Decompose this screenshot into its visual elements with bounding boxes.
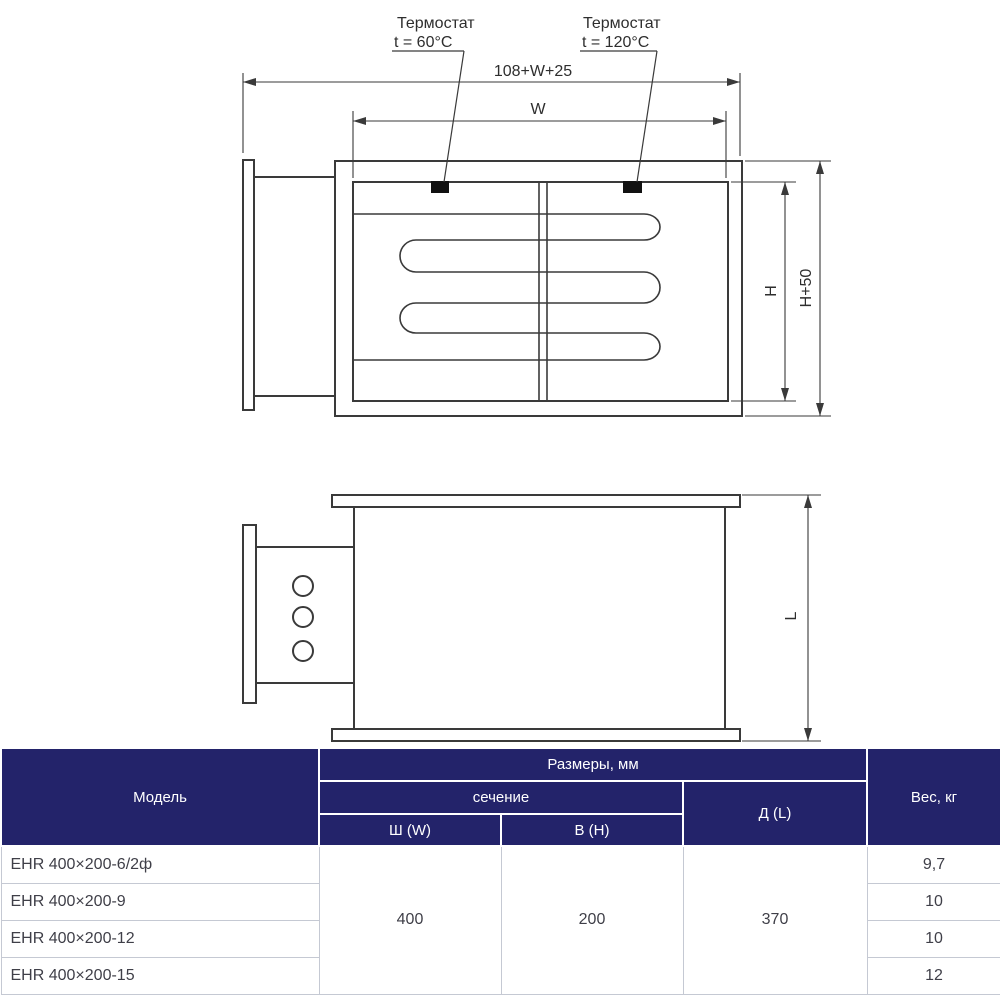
product-sheet: Термостат t = 60°C Термостат t = 120°C 1…	[0, 0, 1000, 1000]
table-row: EHR 400×200-6/2ф 400 200 370 9,7	[1, 846, 1000, 883]
shared-width-cell: 400	[319, 846, 501, 994]
thermostat-60-leader	[444, 51, 464, 182]
dim-total-width	[243, 73, 740, 156]
terminal-box	[256, 547, 354, 683]
dimensions-group-header: Размеры, мм	[319, 748, 867, 781]
thermostat-120-label-line2: t = 120°C	[582, 34, 649, 51]
weight-column-header: Вес, кг	[867, 748, 1000, 846]
terminal-box-flange-plate	[243, 525, 256, 703]
thermostat-60-label-line1: Термостат	[397, 15, 475, 32]
weight-cell: 12	[867, 957, 1000, 994]
front-inner-opening	[353, 182, 728, 401]
shared-height-cell: 200	[501, 846, 683, 994]
length-column-header: Д (L)	[683, 781, 867, 846]
dim-h50-label: H+50	[798, 269, 815, 308]
thermostat-60-marker	[431, 181, 449, 193]
dim-inner-width	[353, 111, 726, 178]
model-cell: EHR 400×200-15	[1, 957, 319, 994]
thermostat-120-marker	[623, 181, 642, 193]
height-column-header: В (H)	[501, 814, 683, 846]
model-cell: EHR 400×200-9	[1, 883, 319, 920]
spec-table-body: EHR 400×200-6/2ф 400 200 370 9,7 EHR 400…	[1, 846, 1000, 994]
shared-length-cell: 370	[683, 846, 867, 994]
model-cell: EHR 400×200-12	[1, 920, 319, 957]
side-bottom-flange	[332, 729, 740, 741]
dim-outer-height	[745, 161, 831, 416]
cable-gland-3	[293, 641, 313, 661]
section-group-header: сечение	[319, 781, 683, 814]
side-view	[243, 495, 821, 741]
cable-gland-2	[293, 607, 313, 627]
dim-length	[742, 495, 821, 741]
heating-coil	[354, 214, 660, 360]
dim-l-label: L	[783, 611, 800, 620]
side-body	[354, 507, 725, 729]
technical-drawing: Термостат t = 60°C Термостат t = 120°C 1…	[0, 0, 1000, 747]
spec-table-header: Модель Размеры, мм Вес, кг сечение Д (L)…	[1, 748, 1000, 846]
dim-h-label: H	[763, 285, 780, 297]
weight-cell: 10	[867, 920, 1000, 957]
header-row-1: Модель Размеры, мм Вес, кг	[1, 748, 1000, 781]
dim-w-label: W	[530, 101, 546, 118]
weight-cell: 9,7	[867, 846, 1000, 883]
cable-gland-1	[293, 576, 313, 596]
width-column-header: Ш (W)	[319, 814, 501, 846]
model-cell: EHR 400×200-6/2ф	[1, 846, 319, 883]
thermostat-120-label-line1: Термостат	[583, 15, 661, 32]
spec-table: Модель Размеры, мм Вес, кг сечение Д (L)…	[0, 747, 1000, 995]
thermostat-120-leader	[637, 51, 657, 182]
thermostat-60-label-line2: t = 60°C	[394, 34, 452, 51]
side-top-flange	[332, 495, 740, 507]
weight-cell: 10	[867, 883, 1000, 920]
dim-total-width-label: 108+W+25	[494, 63, 572, 80]
front-inlet-flange-plate	[243, 160, 254, 410]
model-column-header: Модель	[1, 748, 319, 846]
